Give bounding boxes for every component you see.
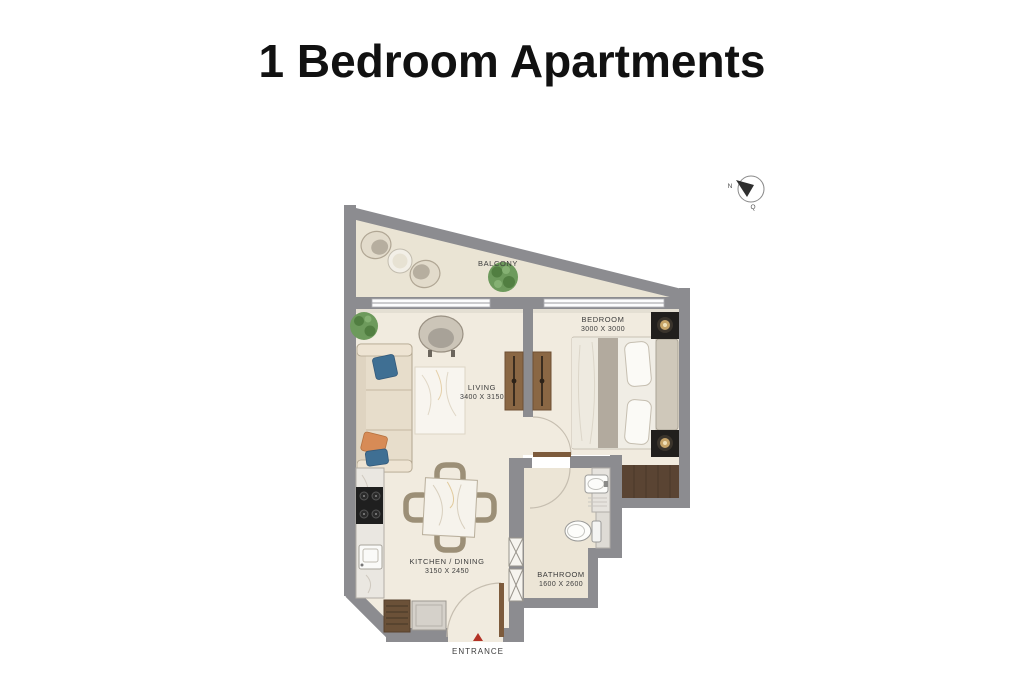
kitchen-label: KITCHEN / DINING — [409, 557, 484, 566]
bed-throw — [598, 338, 618, 448]
page: 1 Bedroom Apartments — [0, 0, 1024, 686]
balcony-side-table — [388, 249, 412, 273]
nightstand-bottom — [651, 430, 679, 457]
nightstand-top — [651, 312, 679, 339]
bathroom-label: BATHROOM — [537, 570, 585, 579]
corridor-closets — [509, 538, 523, 601]
bathroom-dims: 1600 X 2600 — [539, 581, 583, 588]
pillow-blue-bottom — [365, 449, 389, 467]
dining-table — [423, 478, 478, 538]
cooktop — [356, 487, 383, 524]
living-dims: 3400 X 3150 — [460, 394, 504, 401]
bed-pillow-2 — [624, 399, 652, 445]
wall-entrance-right-stub — [503, 628, 524, 642]
living-label: LIVING — [468, 383, 496, 392]
fridge-cabinet — [384, 600, 410, 632]
balcony-label: BALCONY — [478, 259, 518, 268]
compass-mark-label: Q — [750, 204, 755, 211]
entrance-door-leaf — [499, 583, 504, 637]
window-wall-shadow — [356, 309, 679, 313]
closet-door-1 — [509, 538, 523, 566]
wall-bathroom-top-stub — [524, 458, 532, 468]
bed-pillow-1 — [624, 341, 652, 387]
kitchen-sink — [359, 545, 382, 569]
sofa — [357, 344, 412, 472]
vanity-sink — [585, 475, 608, 493]
compass: N Q — [728, 176, 764, 211]
headboard — [656, 339, 678, 430]
wall-bathroom-bottom — [524, 598, 598, 608]
closet-door-2 — [509, 569, 523, 601]
living-plant — [350, 312, 378, 340]
wall-closet-bottom — [610, 498, 690, 508]
pillow-blue-top — [372, 354, 398, 380]
compass-north-label: N — [728, 183, 733, 190]
toilet — [565, 521, 601, 542]
bedroom-door-leaf — [533, 452, 571, 457]
wall-left — [344, 205, 356, 596]
floor-plan: BALCONY BEDROOM 3000 X 3000 LIVING 3400 … — [0, 0, 1024, 686]
lower-cabinet — [412, 601, 446, 630]
kitchen-dims: 3150 X 2450 — [425, 568, 469, 575]
rug — [415, 367, 465, 434]
wall-right — [679, 288, 690, 508]
bedroom-dims: 3000 X 3000 — [581, 326, 625, 333]
bedroom-label: BEDROOM — [582, 315, 625, 324]
entrance-label: ENTRANCE — [452, 647, 504, 656]
wall-divider-living-bedroom — [523, 309, 533, 417]
